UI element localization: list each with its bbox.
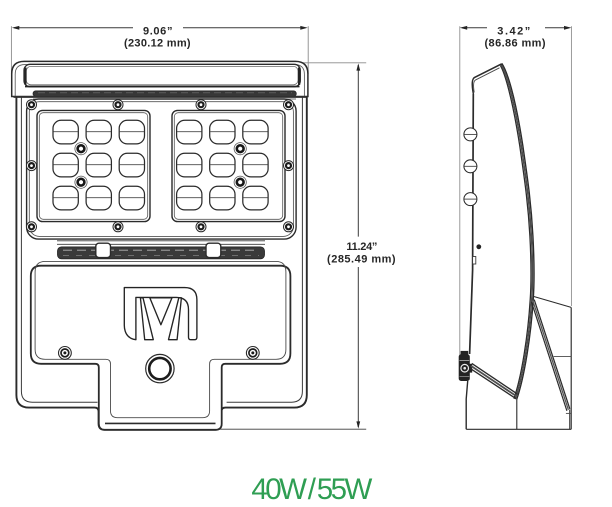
svg-text:40W / 55W: 40W / 55W xyxy=(251,473,372,506)
svg-text:3.42”: 3.42” xyxy=(497,25,530,37)
svg-text:(86.86 mm): (86.86 mm) xyxy=(485,37,546,49)
svg-text:(285.49 mm): (285.49 mm) xyxy=(327,253,396,265)
svg-text:(230.12 mm): (230.12 mm) xyxy=(124,37,191,49)
svg-text:9.06”: 9.06” xyxy=(143,25,173,37)
svg-text:11.24”: 11.24” xyxy=(346,241,377,253)
